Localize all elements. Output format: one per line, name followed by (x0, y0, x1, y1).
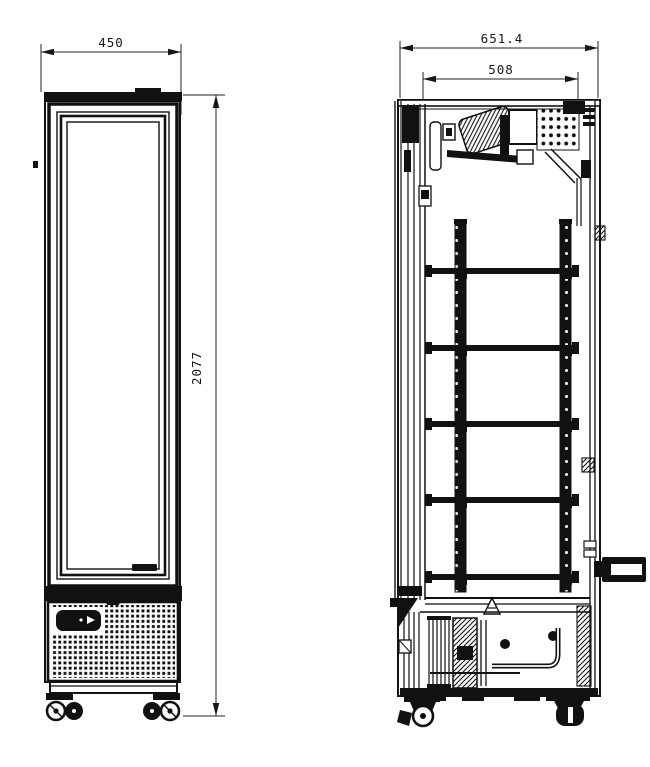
shelf-rail-front (455, 224, 466, 592)
door-sticker (132, 564, 157, 571)
wall-spacer (594, 557, 646, 582)
fan-bracket-bolt (446, 128, 452, 136)
caster-side-rear (546, 694, 590, 726)
fan-shroud-edge (500, 115, 509, 159)
shelf-board (428, 421, 578, 427)
shelf-bracket (560, 351, 572, 356)
wall-clip (584, 541, 596, 548)
side-view: 651.4 508 (390, 31, 646, 726)
shelf-bracket (560, 503, 572, 508)
shelf-bracket (455, 503, 467, 508)
door-closer-cam (421, 190, 429, 199)
wheel-hub (167, 708, 172, 713)
caster-plate (404, 696, 440, 702)
temperature-controller (56, 610, 101, 631)
dim-front-width-label: 450 (98, 35, 124, 50)
shelf-board (428, 574, 578, 580)
pipe-hole (500, 639, 510, 649)
hinge-pin (404, 150, 411, 172)
caster-plate (153, 693, 180, 700)
shelf-board (428, 497, 578, 503)
side-cabinet (390, 100, 646, 726)
wall-bracket (582, 458, 594, 472)
caster-side-front (397, 696, 440, 726)
wheel-hub (72, 709, 76, 713)
dim-side-depth-label: 651.4 (481, 31, 524, 46)
cooler-technical-drawing: 450 2077 (0, 0, 650, 767)
condenser-cap (427, 616, 451, 620)
junction-box (581, 160, 591, 178)
shelf-bracket (455, 274, 467, 279)
shelf-bracket (560, 580, 572, 585)
rear-condenser (577, 606, 591, 686)
hinge-pin-mark (33, 161, 38, 168)
spacer-stub (594, 561, 603, 577)
drip-tray (509, 110, 537, 144)
shelf-rail-rear (560, 224, 571, 592)
dim-front-height: 2077 (183, 95, 225, 716)
rail-cap (559, 219, 572, 224)
evaporator-coil (537, 109, 579, 150)
front-base (50, 682, 177, 693)
rail-cap (454, 219, 467, 224)
caster-plate (46, 693, 73, 700)
control-box (563, 101, 585, 114)
front-cabinet (33, 88, 182, 720)
technical-drawing-page: 450 2077 (0, 0, 650, 767)
bottom-band (44, 586, 182, 601)
base-frame (50, 682, 177, 693)
vent-slat (583, 122, 595, 126)
caster-plate (546, 694, 590, 701)
plate-tab (514, 696, 540, 701)
wheel-hub (53, 708, 58, 713)
ventilation-grille (48, 602, 178, 681)
shelf-board (428, 345, 578, 351)
tray-support (517, 150, 533, 164)
top-hinge-block (402, 105, 419, 143)
condenser-cap (427, 684, 451, 688)
vent-slat (583, 115, 595, 119)
caster-front-left (46, 693, 83, 720)
shelf-bracket (560, 274, 572, 279)
shelf-bracket (560, 427, 572, 432)
brake-pedal (397, 710, 412, 726)
shelf-bracket (455, 580, 467, 585)
wall-spacer-upper (595, 226, 605, 240)
compressor-terminal (457, 646, 473, 660)
wheel-slit (568, 707, 573, 723)
dim-front-height-label: 2077 (189, 351, 204, 385)
spacer-slot (611, 564, 642, 575)
wheel-hub (150, 709, 154, 713)
shelf-board (428, 268, 578, 274)
controller-led (79, 618, 82, 621)
shelf-bracket (455, 427, 467, 432)
dim-side-internal-label: 508 (488, 62, 514, 77)
wall-clip (584, 550, 596, 557)
plate-tab (462, 696, 484, 701)
bottom-hinge-block (398, 586, 422, 596)
shelf-bracket (455, 351, 467, 356)
wheel-hub (420, 713, 426, 719)
top-band (44, 92, 182, 101)
front-view: 450 2077 (33, 35, 225, 720)
door-frame-duct (430, 122, 441, 170)
caster-front-right (143, 693, 180, 720)
bottom-hinge-stub (390, 598, 398, 607)
